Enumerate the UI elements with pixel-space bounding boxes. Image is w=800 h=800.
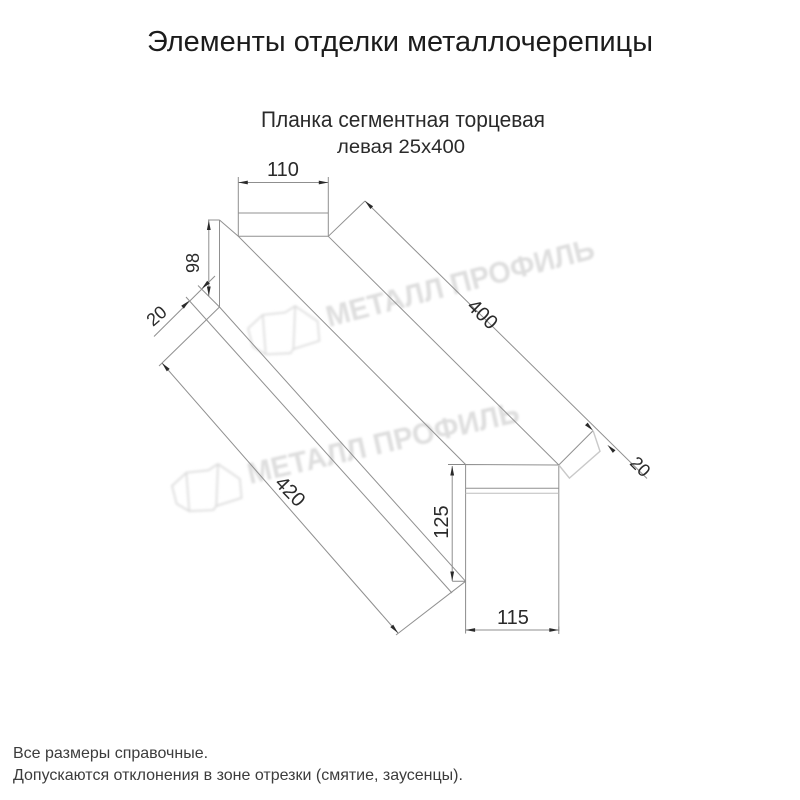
svg-text:110: 110 — [267, 159, 299, 181]
svg-text:20: 20 — [626, 453, 654, 481]
svg-text:Допускаются отклонения в зоне: Допускаются отклонения в зоне отрезки (с… — [13, 767, 463, 784]
svg-text:МЕТАЛЛ ПРОФИЛЬ: МЕТАЛЛ ПРОФИЛЬ — [322, 233, 597, 334]
svg-text:125: 125 — [431, 505, 453, 538]
svg-text:20: 20 — [142, 302, 170, 330]
svg-text:левая 25х400: левая 25х400 — [337, 137, 465, 158]
svg-text:98: 98 — [183, 253, 203, 273]
svg-text:Планка сегментная торцевая: Планка сегментная торцевая — [261, 107, 545, 132]
svg-text:400: 400 — [463, 295, 502, 334]
svg-text:115: 115 — [497, 607, 529, 629]
svg-text:Элементы отделки металлочерепи: Элементы отделки металлочерепицы — [147, 26, 653, 58]
svg-text:Все размеры справочные.: Все размеры справочные. — [13, 745, 208, 762]
